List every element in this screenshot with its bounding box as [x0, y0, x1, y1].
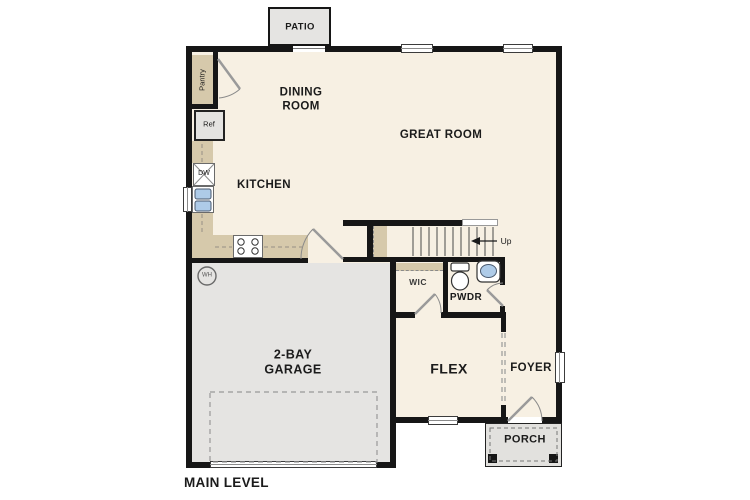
- great-room-label: GREAT ROOM: [400, 129, 482, 143]
- powder-label: PWDR: [450, 292, 482, 304]
- kitchen-label: KITCHEN: [237, 179, 291, 193]
- porch-label: PORCH: [504, 434, 546, 447]
- garage-door-opening: [210, 461, 377, 468]
- window-foyer-right: [555, 352, 565, 383]
- wall-wic-flex-a: [390, 312, 415, 318]
- patio-sliding-door: [293, 46, 325, 52]
- wall-kitchen-garage: [186, 258, 308, 263]
- wall-foyer-bottom: [542, 417, 562, 423]
- wic-shelf: [396, 263, 443, 271]
- wall-flex-bottom-b: [458, 417, 508, 423]
- window-dining-top: [401, 44, 433, 53]
- patio-label: PATIO: [285, 21, 315, 32]
- window-flex-bottom: [428, 416, 458, 425]
- foyer-label: FOYER: [510, 362, 552, 376]
- water-heater-label: WH: [202, 272, 212, 279]
- window-greatroom-top: [503, 44, 533, 53]
- wall-wic-pwdr-divider: [443, 260, 448, 315]
- wall-pantry-bottom: [186, 104, 218, 109]
- wall-left: [186, 46, 192, 468]
- wall-stairs-left: [367, 220, 373, 262]
- stair-open-rail: [462, 219, 498, 226]
- wall-pantry-right: [213, 52, 218, 108]
- stairs-up-label: Up: [501, 236, 512, 246]
- pantry-label: Pantry: [199, 69, 208, 91]
- wic-label: WIC: [409, 277, 427, 287]
- wall-wic-flex-b: [441, 312, 506, 318]
- wall-garage-right: [390, 258, 396, 468]
- wall-flex-bottom-a: [390, 417, 428, 423]
- wall-pwdr-right-upper: [500, 260, 505, 285]
- wall-flex-right-stub-top: [501, 318, 506, 332]
- refrigerator-label: Ref: [203, 121, 215, 130]
- floor-plan: PATIO DINING ROOM GREAT ROOM KITCHEN 2-B…: [0, 0, 750, 500]
- stair-base-block: [373, 226, 387, 257]
- porch-post-right: [549, 454, 558, 463]
- flex-label: FLEX: [430, 361, 467, 378]
- garage-label: 2-BAY GARAGE: [264, 347, 321, 377]
- kitchen-counter-left-lower: [192, 212, 213, 235]
- range-box: [233, 235, 263, 258]
- dishwasher-label: DW: [198, 170, 210, 178]
- wall-stairs-top: [343, 220, 462, 226]
- porch-post-left: [488, 454, 497, 463]
- kitchen-sink-box: [192, 186, 214, 213]
- dining-room-label: DINING ROOM: [280, 86, 323, 113]
- window-kitchen-left: [183, 187, 192, 212]
- kitchen-counter-left-upper: [192, 141, 213, 163]
- page-title: MAIN LEVEL: [184, 475, 269, 491]
